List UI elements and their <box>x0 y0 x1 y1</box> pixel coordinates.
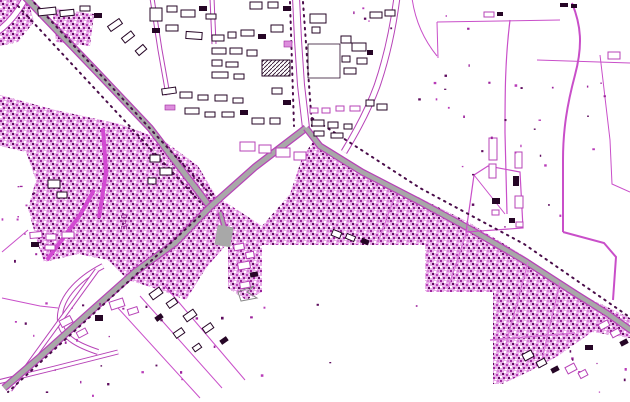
map-speckle <box>552 87 554 89</box>
map-speckle <box>599 392 600 393</box>
map-speckle <box>446 15 447 17</box>
map-layers <box>0 0 630 402</box>
building <box>247 50 257 56</box>
building <box>328 122 338 128</box>
building <box>331 133 343 138</box>
map-speckle <box>539 120 542 121</box>
map-speckle <box>364 18 366 20</box>
map-speckle <box>33 335 34 337</box>
building <box>276 148 290 157</box>
building <box>342 56 350 62</box>
map-speckle <box>587 86 588 88</box>
building <box>38 7 57 16</box>
paved-area <box>214 225 233 247</box>
building <box>284 41 292 47</box>
map-speckle <box>572 359 573 361</box>
building <box>312 120 324 126</box>
building <box>314 131 324 136</box>
map-speckle <box>250 316 253 318</box>
spot-elevation-label: 340 <box>120 213 129 230</box>
building <box>215 95 227 101</box>
building <box>252 118 264 124</box>
building <box>205 112 215 117</box>
map-speckle <box>463 116 465 119</box>
building <box>344 124 352 129</box>
building <box>80 6 90 11</box>
map-viewport: 340 <box>0 0 630 402</box>
map-speckle <box>17 216 19 218</box>
building <box>509 218 515 223</box>
map-speckle <box>33 168 34 171</box>
building <box>484 12 494 17</box>
building <box>283 6 291 11</box>
building <box>222 112 234 117</box>
map-speckle <box>80 381 81 384</box>
map-speckle <box>515 152 516 154</box>
map-speckle <box>160 319 162 321</box>
building <box>226 62 238 67</box>
building <box>336 106 344 111</box>
map-speckle <box>472 204 475 206</box>
map-speckle <box>24 234 26 235</box>
map-speckle <box>55 369 56 371</box>
building <box>497 12 503 16</box>
map-speckle <box>46 391 48 393</box>
map-speckle <box>462 166 464 167</box>
building <box>185 108 199 114</box>
map-speckle <box>578 371 580 373</box>
map-speckle <box>109 336 110 337</box>
building <box>162 87 177 95</box>
map-speckle <box>481 150 483 152</box>
building <box>294 152 306 160</box>
map-speckle <box>122 308 124 310</box>
map-speckle <box>214 346 216 348</box>
map-speckle <box>625 368 627 371</box>
building <box>186 31 202 39</box>
map-speckle <box>196 317 199 319</box>
map-speckle <box>146 306 148 308</box>
building <box>45 245 55 250</box>
building <box>272 88 282 94</box>
building <box>206 14 216 19</box>
building <box>250 2 262 9</box>
map-speckle <box>504 226 506 227</box>
building <box>350 106 360 111</box>
map-speckle <box>467 28 469 30</box>
building <box>166 25 178 31</box>
map-speckle <box>107 383 109 385</box>
map-speckle <box>604 95 606 97</box>
building <box>344 68 356 74</box>
building <box>310 14 326 23</box>
map-speckle <box>540 155 541 157</box>
building <box>560 3 568 7</box>
map-speckle <box>101 365 103 366</box>
building <box>60 9 75 16</box>
map-speckle <box>221 317 224 320</box>
map-speckle <box>156 365 158 367</box>
map-speckle <box>92 395 94 397</box>
building <box>180 92 192 98</box>
building <box>240 110 248 115</box>
map-speckle <box>15 321 17 323</box>
map-speckle <box>35 253 37 255</box>
building <box>516 222 523 227</box>
map-speckle <box>14 260 16 263</box>
building <box>241 30 254 36</box>
building <box>608 52 620 59</box>
building <box>246 251 255 258</box>
map-speckle <box>448 107 450 109</box>
building <box>357 58 367 64</box>
building <box>367 50 373 55</box>
building <box>230 48 242 54</box>
building <box>513 176 519 186</box>
building <box>212 48 226 54</box>
building <box>237 261 250 270</box>
building <box>167 6 177 12</box>
building <box>62 232 74 238</box>
map-speckle <box>491 137 493 140</box>
building <box>152 28 160 33</box>
building <box>492 198 500 204</box>
building <box>310 108 318 113</box>
map-speckle <box>416 305 418 307</box>
building <box>148 178 156 184</box>
building <box>489 138 497 160</box>
map-speckle <box>418 98 421 100</box>
building <box>585 345 593 350</box>
building <box>234 74 244 79</box>
building <box>48 180 60 188</box>
map-speckle <box>559 215 561 217</box>
map-speckle <box>390 27 392 29</box>
map-speckle <box>181 379 183 381</box>
map-speckle <box>2 218 4 220</box>
building <box>57 192 67 198</box>
building <box>150 8 162 21</box>
map-speckle <box>444 89 446 90</box>
building <box>515 152 522 168</box>
building <box>258 34 266 39</box>
building <box>489 164 496 178</box>
map-speckle <box>18 186 20 187</box>
map-speckle <box>587 116 589 118</box>
building <box>94 13 102 18</box>
map-speckle <box>39 242 42 243</box>
map-speckle <box>520 145 521 148</box>
map-speckle <box>329 362 331 363</box>
building <box>31 242 39 247</box>
map-speckle <box>600 83 601 84</box>
map-speckle <box>592 148 595 150</box>
map-speckle <box>99 303 101 306</box>
building <box>212 35 224 41</box>
map-speckle <box>434 82 437 84</box>
map-speckle <box>362 7 364 9</box>
map-speckle <box>33 192 35 194</box>
building <box>270 118 280 124</box>
map-speckle <box>26 205 28 207</box>
map-speckle <box>141 371 144 373</box>
building <box>160 168 172 175</box>
building <box>515 196 523 208</box>
map-speckle <box>180 371 182 374</box>
map-speckle <box>20 186 23 187</box>
building <box>233 98 243 103</box>
map-speckle <box>548 204 550 206</box>
map-speckle <box>436 98 438 100</box>
map-speckle <box>504 119 506 121</box>
building <box>212 72 228 78</box>
building <box>312 27 320 33</box>
map-speckle <box>65 341 67 344</box>
building <box>240 142 255 151</box>
map-speckle <box>624 379 626 382</box>
map-speckle <box>17 219 19 221</box>
building <box>370 12 382 18</box>
building <box>46 234 56 240</box>
map-speckle <box>472 174 474 176</box>
building <box>492 210 499 215</box>
building <box>181 10 195 17</box>
map-speckle <box>544 164 547 166</box>
building <box>30 231 42 238</box>
building <box>571 4 577 8</box>
map-speckle <box>488 82 490 84</box>
map-speckle <box>368 20 369 22</box>
map-speckle <box>76 339 78 342</box>
map-speckle <box>82 304 84 306</box>
map-speckle <box>264 307 266 309</box>
building <box>322 108 330 113</box>
map-speckle <box>469 64 470 67</box>
map-speckle <box>317 304 319 306</box>
map-speckle <box>570 350 572 352</box>
building <box>165 105 175 110</box>
map-speckle <box>71 308 73 309</box>
building <box>268 2 278 8</box>
building <box>198 95 208 100</box>
map-speckle <box>521 87 523 89</box>
map-speckle <box>25 322 27 324</box>
building <box>199 6 207 11</box>
building <box>283 100 291 105</box>
building <box>228 32 236 38</box>
building <box>95 315 103 321</box>
building <box>240 281 251 289</box>
building <box>150 155 160 162</box>
building <box>352 43 366 51</box>
scanned-cadastral-map[interactable]: 340 <box>0 0 630 402</box>
building <box>366 100 374 106</box>
building <box>377 104 387 110</box>
map-speckle <box>261 374 264 377</box>
building <box>212 60 222 66</box>
building <box>271 25 283 32</box>
building <box>259 145 271 153</box>
building <box>341 36 351 43</box>
map-speckle <box>596 363 597 364</box>
map-speckle <box>353 11 354 14</box>
map-speckle <box>534 129 536 130</box>
building <box>385 10 395 16</box>
map-speckle <box>515 84 518 87</box>
map-speckle <box>445 75 448 77</box>
building <box>262 60 290 76</box>
building <box>234 243 245 251</box>
map-speckle <box>45 302 47 304</box>
